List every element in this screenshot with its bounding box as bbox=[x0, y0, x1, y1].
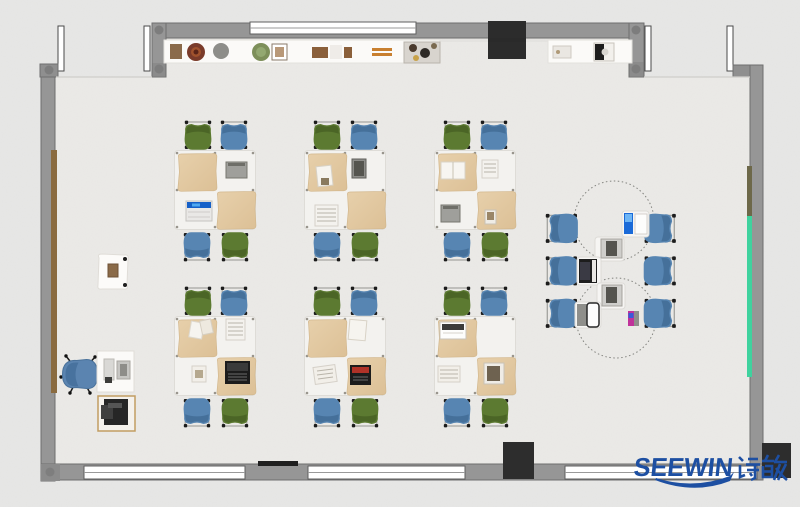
svg-text:SEEWIN: SEEWIN bbox=[632, 452, 734, 482]
